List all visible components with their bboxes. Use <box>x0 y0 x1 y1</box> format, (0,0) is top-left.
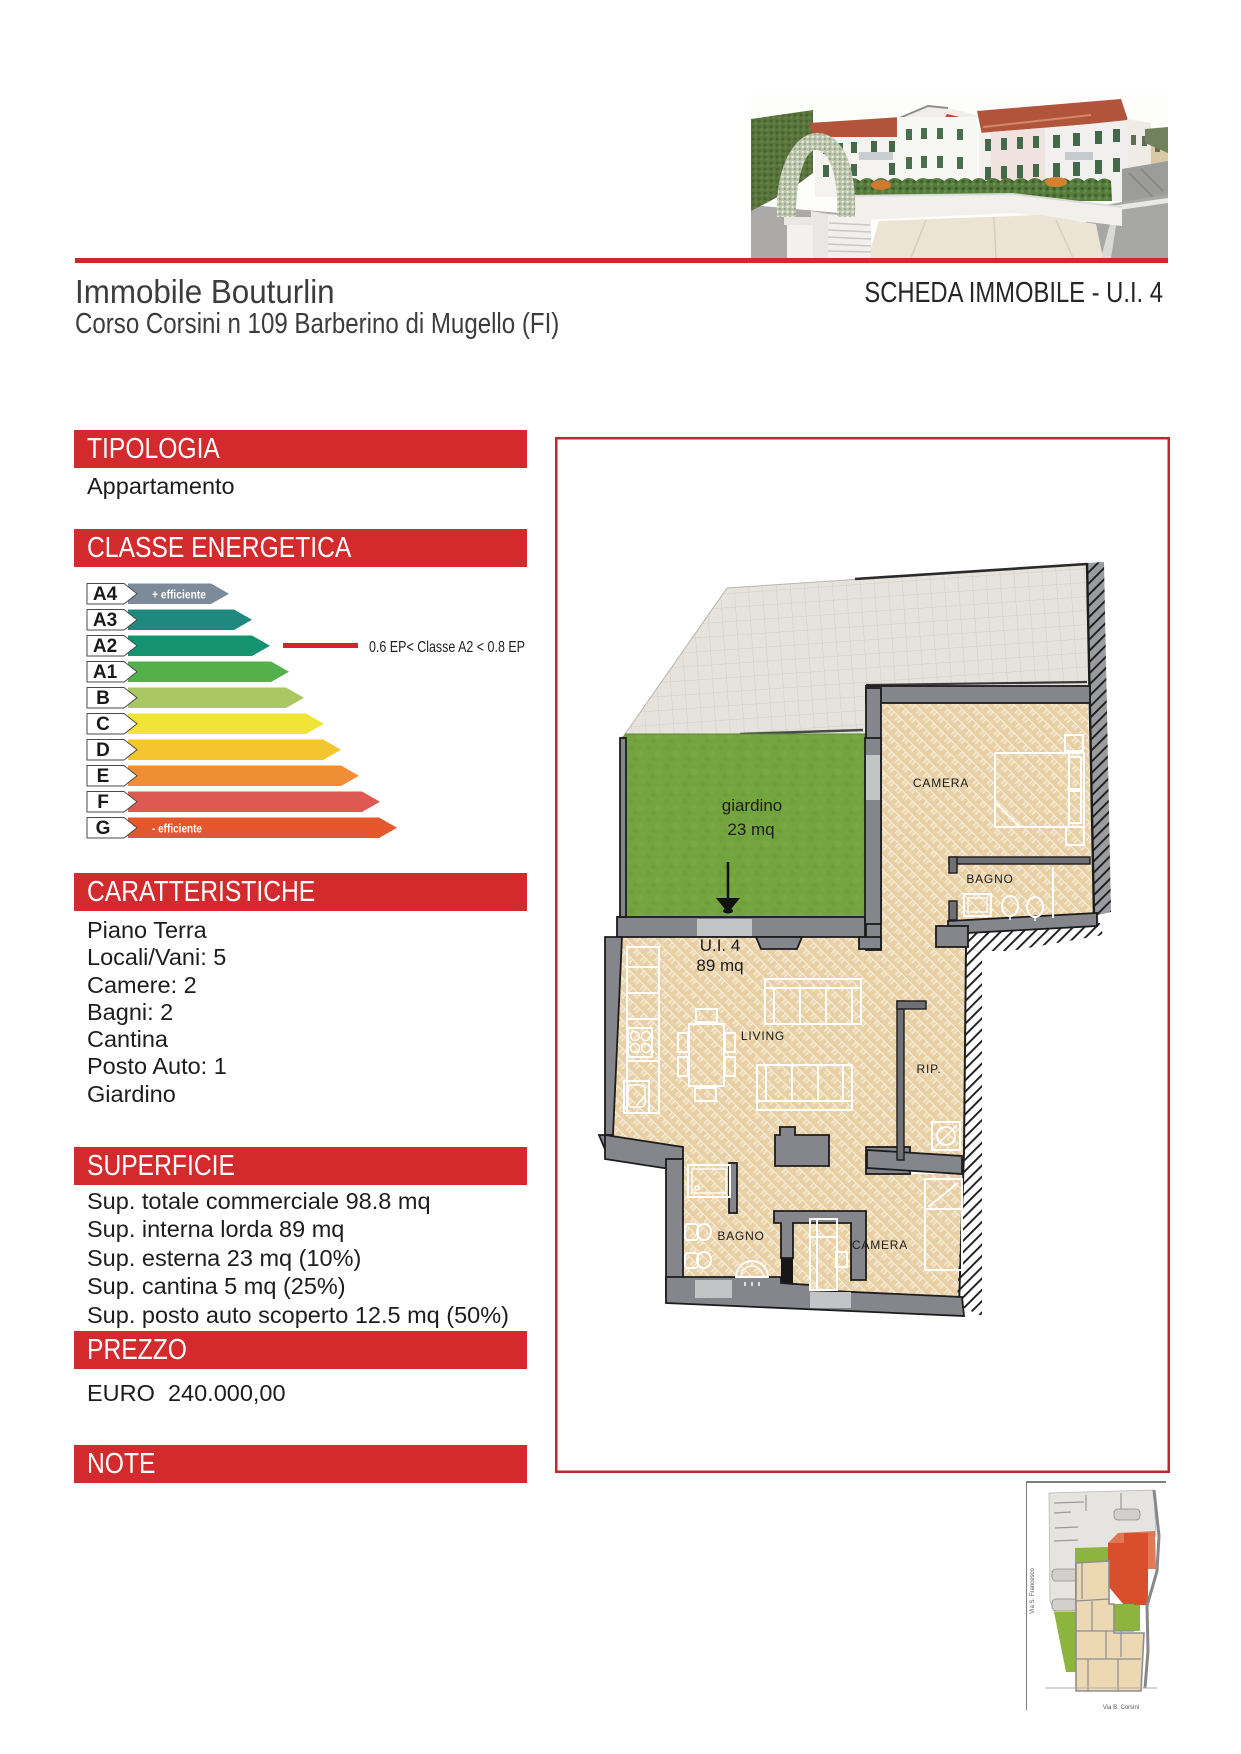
svg-text:A2: A2 <box>93 636 117 657</box>
svg-text:BAGNO: BAGNO <box>966 872 1013 886</box>
svg-text:Via S. Francesco: Via S. Francesco <box>1030 1568 1036 1614</box>
svg-text:A3: A3 <box>93 610 117 631</box>
svg-text:A1: A1 <box>93 662 118 683</box>
svg-text:A4: A4 <box>93 584 118 605</box>
svg-text:CAMERA: CAMERA <box>913 776 969 790</box>
svg-text:F: F <box>97 792 109 813</box>
svg-text:Via B. Corsini: Via B. Corsini <box>1103 1705 1139 1711</box>
svg-text:G: G <box>96 818 111 839</box>
svg-text:U.I. 4: U.I. 4 <box>700 936 741 955</box>
svg-text:CAMERA: CAMERA <box>852 1238 908 1252</box>
svg-text:E: E <box>97 766 110 787</box>
svg-text:0.6 EP< Classe A2 < 0.8 EP: 0.6 EP< Classe A2 < 0.8 EP <box>369 639 525 656</box>
svg-text:C: C <box>96 714 110 735</box>
svg-text:D: D <box>96 740 110 761</box>
svg-text:BAGNO: BAGNO <box>717 1229 764 1243</box>
svg-text:RIP.: RIP. <box>917 1062 942 1076</box>
svg-text:LIVING: LIVING <box>741 1029 785 1043</box>
svg-text:- efficiente: - efficiente <box>152 822 202 836</box>
svg-text:giardino: giardino <box>722 796 783 815</box>
svg-text:B: B <box>96 688 110 709</box>
svg-text:23 mq: 23 mq <box>727 820 774 839</box>
svg-text:89 mq: 89 mq <box>696 956 743 975</box>
svg-text:+ efficiente: + efficiente <box>152 588 206 602</box>
